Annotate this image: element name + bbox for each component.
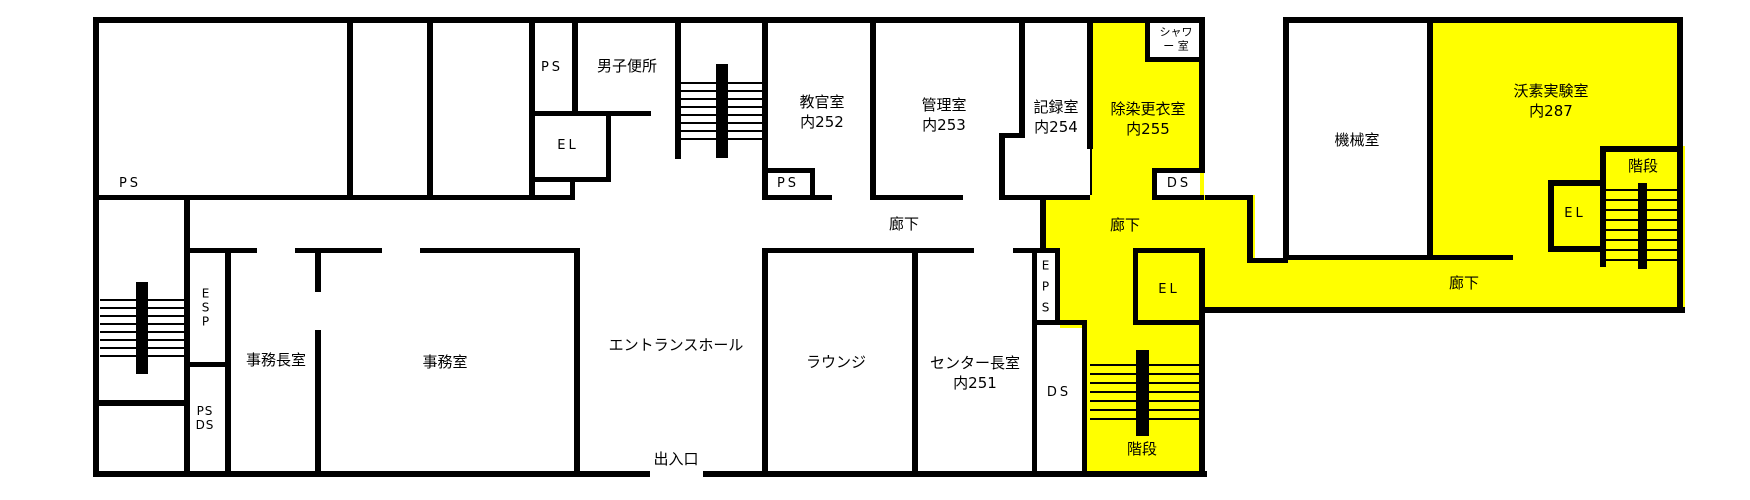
label-elevator-upper: EL	[557, 137, 578, 155]
label-instructor-room: 教官室 内252	[799, 92, 844, 133]
label-ps-ds-shaft: PS DS	[196, 405, 215, 433]
label-decon-room: 除染更衣室 内255	[1110, 99, 1185, 140]
label-ps-shaft-upper: PS	[541, 59, 563, 77]
label-elevator-east: EL	[1564, 205, 1585, 223]
label-records-room: 記録室 内254	[1033, 97, 1078, 138]
floor-plan-drawing	[0, 0, 1750, 500]
label-office-room: 事務室	[422, 352, 467, 372]
label-stairs-east: 階段	[1628, 156, 1658, 176]
label-admin-room: 管理室 内253	[921, 95, 966, 136]
label-entrance-exit: 出入口	[653, 449, 698, 469]
label-ds-shaft-top: DS	[1167, 175, 1191, 193]
label-office-chief-room: 事務長室	[246, 350, 306, 370]
zone-el-lobby	[1060, 250, 1202, 328]
label-ps-shaft-west: PS	[119, 175, 141, 193]
label-corridor-yellow: 廊下	[1110, 215, 1140, 235]
label-esp-shaft: E S P	[202, 287, 211, 328]
label-ps-shaft-mid: PS	[777, 175, 799, 193]
label-machine-room: 機械室	[1334, 130, 1379, 150]
label-ds-shaft-bottom: DS	[1047, 384, 1071, 402]
stairs-upper-center	[680, 64, 762, 158]
label-entrance-hall: エントランスホール	[609, 335, 744, 355]
label-corridor-west: 廊下	[889, 214, 919, 234]
label-center-director-room: センター長室 内251	[930, 353, 1020, 394]
label-elevator-yellow: EL	[1158, 281, 1179, 299]
label-shower-room: シャワ ー 室	[1160, 26, 1193, 55]
stairs-west	[100, 282, 184, 374]
label-mens-toilet: 男子便所	[597, 56, 657, 76]
label-iodine-lab: 沃素実験室 内287	[1513, 81, 1588, 122]
label-corridor-east: 廊下	[1449, 273, 1479, 293]
label-eps-shaft: E P S	[1042, 256, 1051, 319]
label-lounge: ラウンジ	[806, 352, 866, 372]
label-stairs-south: 階段	[1127, 439, 1157, 459]
floor-plan-canvas: PS PS 男子便所 EL 教官室 内252 管理室 内253 記録室 内254…	[0, 0, 1750, 500]
